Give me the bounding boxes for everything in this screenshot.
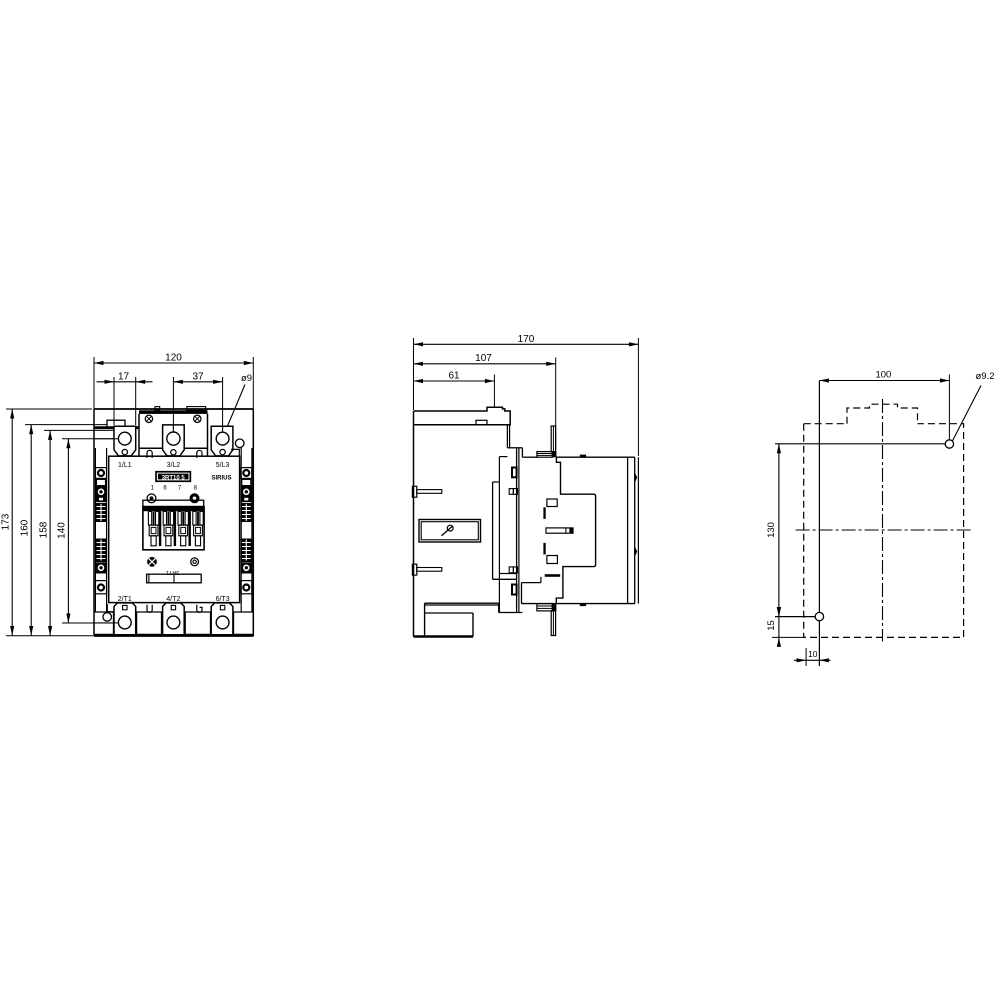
- svg-text:5/L3: 5/L3: [216, 462, 230, 469]
- svg-text:15: 15: [766, 620, 777, 631]
- svg-text:ø9: ø9: [241, 373, 252, 384]
- svg-text:17: 17: [118, 372, 130, 383]
- svg-text:2/T1: 2/T1: [118, 596, 132, 603]
- svg-text:120: 120: [165, 353, 182, 364]
- svg-text:3RT10 5: 3RT10 5: [162, 475, 186, 481]
- svg-text:ø9.2: ø9.2: [975, 371, 994, 382]
- svg-text:37: 37: [192, 372, 204, 383]
- svg-text:10: 10: [808, 649, 818, 659]
- svg-text:4/T2: 4/T2: [166, 596, 180, 603]
- svg-text:61: 61: [448, 371, 460, 382]
- svg-text:3/L2: 3/L2: [167, 462, 181, 469]
- svg-text:160: 160: [20, 519, 31, 536]
- svg-text:107: 107: [475, 353, 492, 364]
- svg-text:1/L1: 1/L1: [118, 462, 132, 469]
- svg-text:SIRIUS: SIRIUS: [211, 476, 231, 482]
- svg-text:6/T3: 6/T3: [216, 596, 230, 603]
- svg-text:170: 170: [518, 334, 535, 345]
- svg-text:100: 100: [875, 370, 891, 381]
- svg-text:173: 173: [1, 513, 12, 530]
- svg-text:140: 140: [57, 522, 68, 539]
- svg-text:158: 158: [38, 521, 49, 538]
- svg-text:130: 130: [766, 522, 777, 538]
